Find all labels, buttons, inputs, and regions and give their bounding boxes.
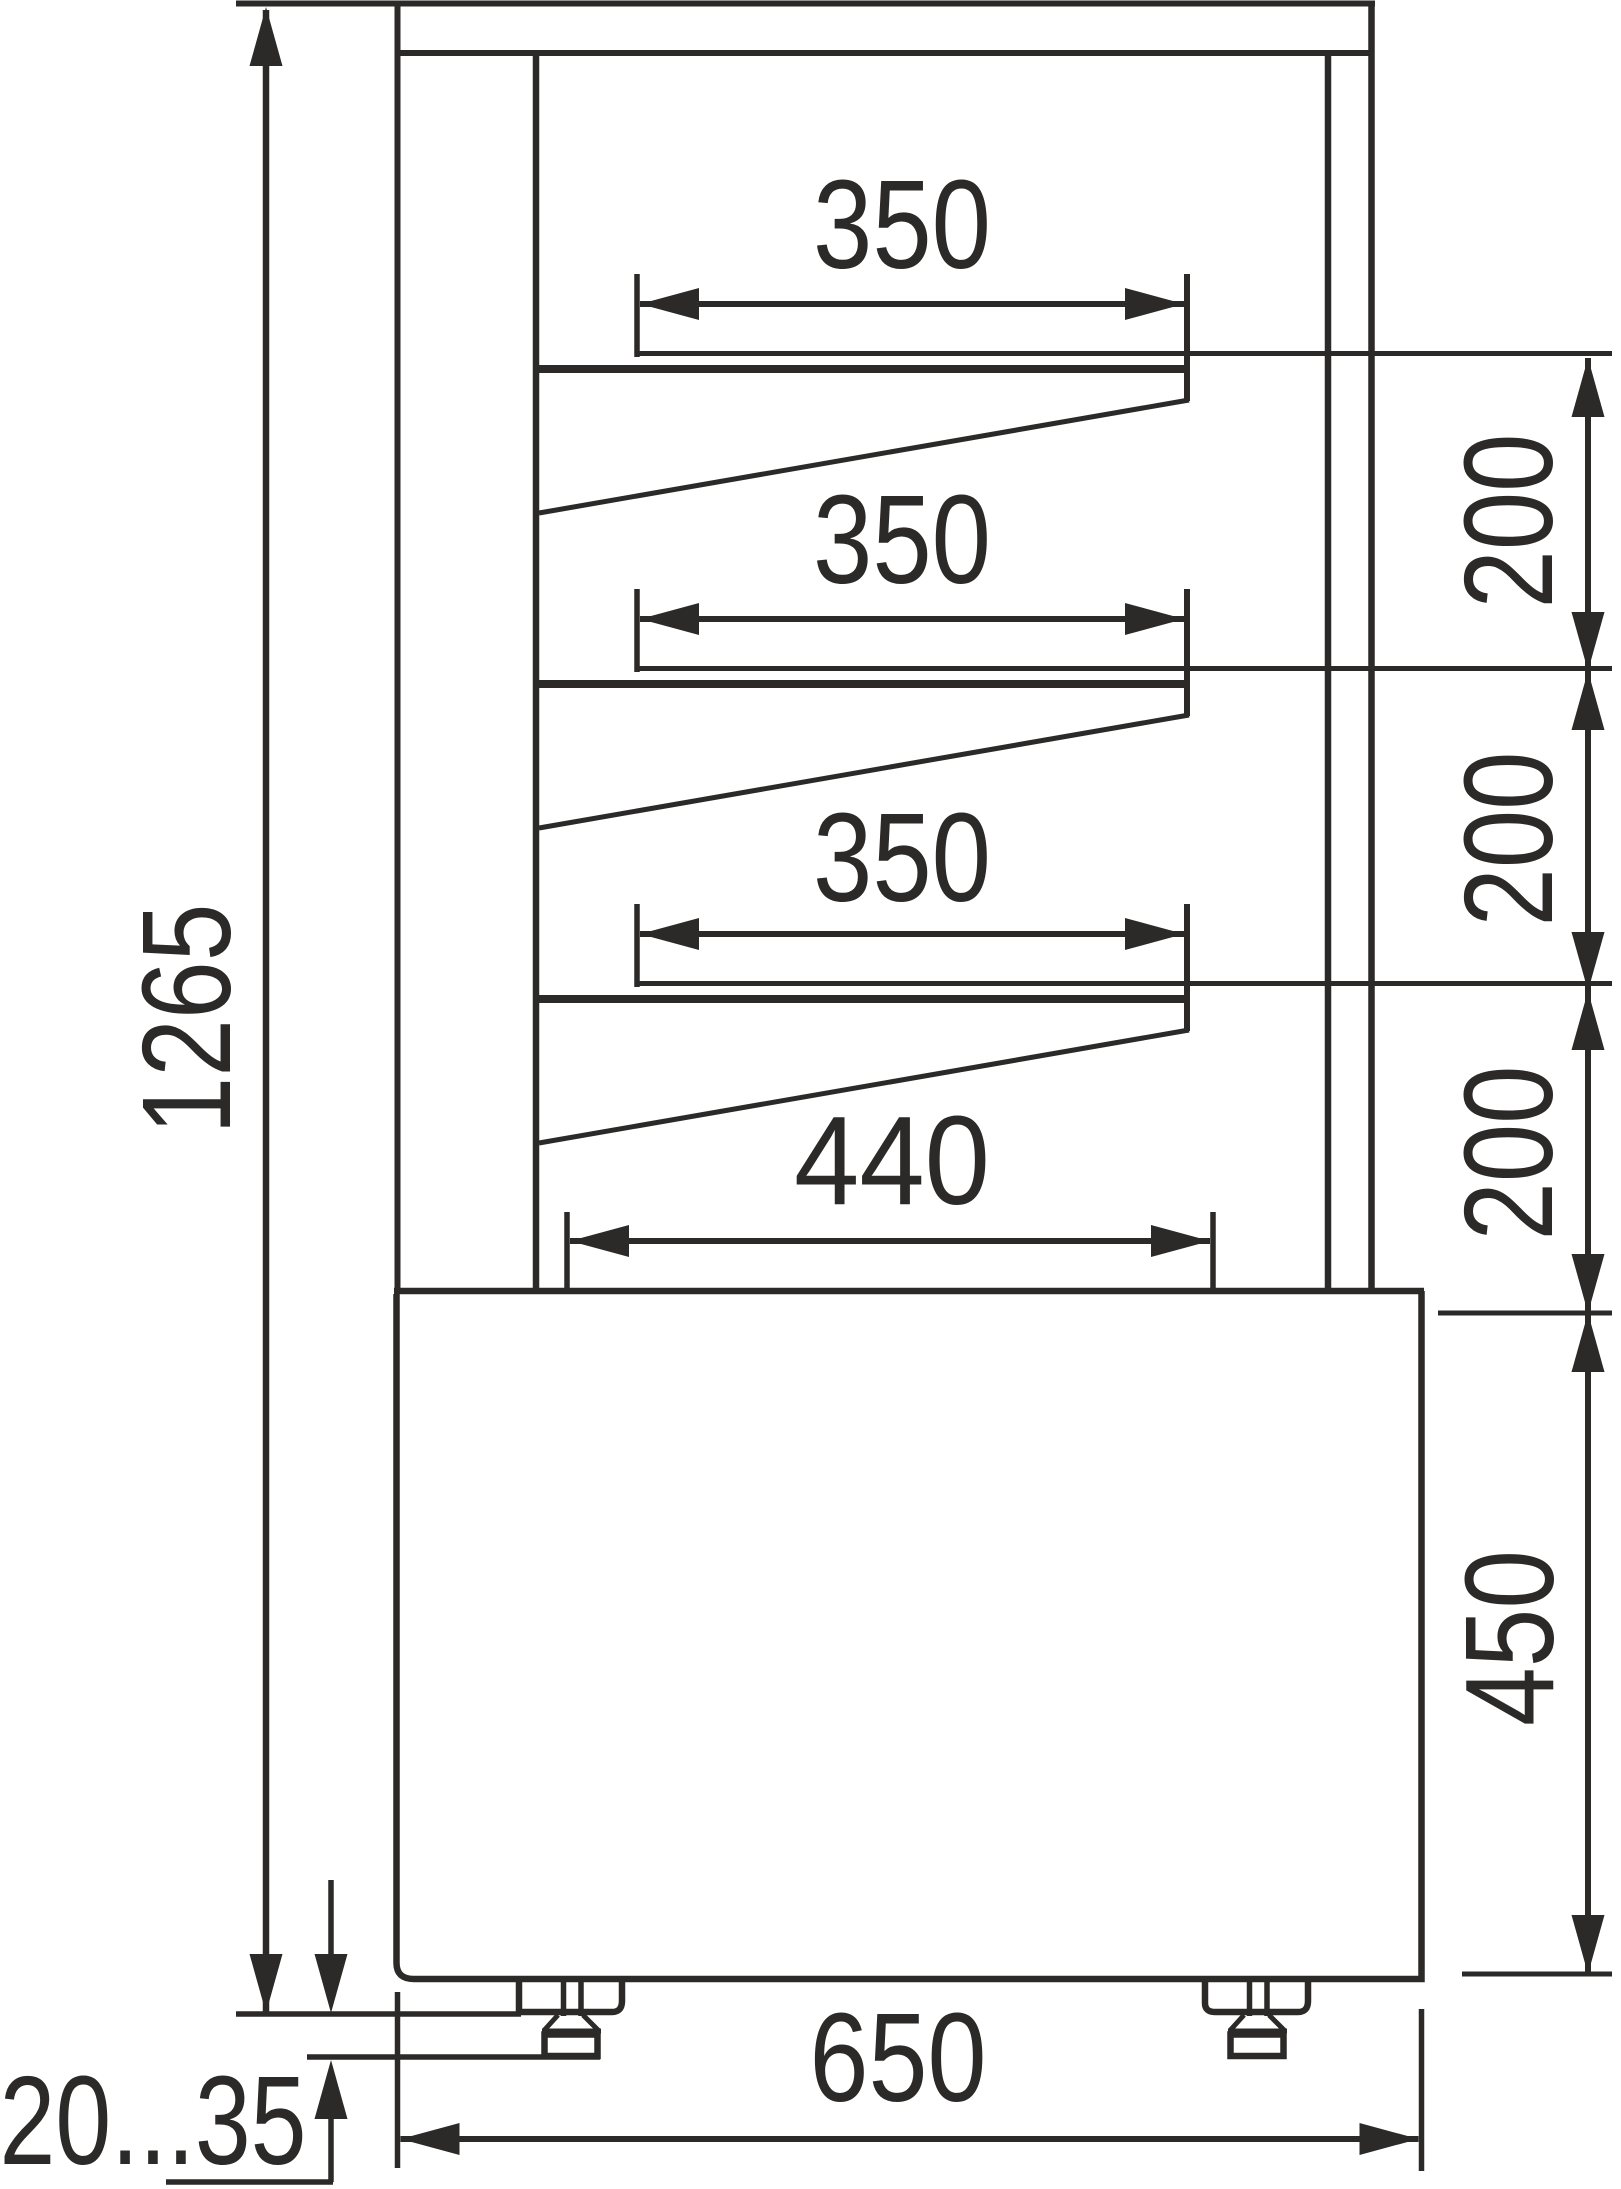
svg-text:350: 350	[813, 154, 991, 295]
svg-text:200: 200	[1438, 1066, 1579, 1241]
svg-text:200: 200	[1438, 434, 1579, 609]
svg-text:650: 650	[810, 1987, 987, 2128]
svg-text:200: 200	[1438, 752, 1579, 927]
svg-text:350: 350	[813, 469, 991, 610]
svg-text:20...35: 20...35	[0, 2050, 307, 2189]
svg-text:1265: 1265	[116, 904, 257, 1135]
svg-text:450: 450	[1439, 1550, 1580, 1726]
svg-text:440: 440	[794, 1090, 990, 1231]
svg-text:350: 350	[813, 787, 991, 928]
